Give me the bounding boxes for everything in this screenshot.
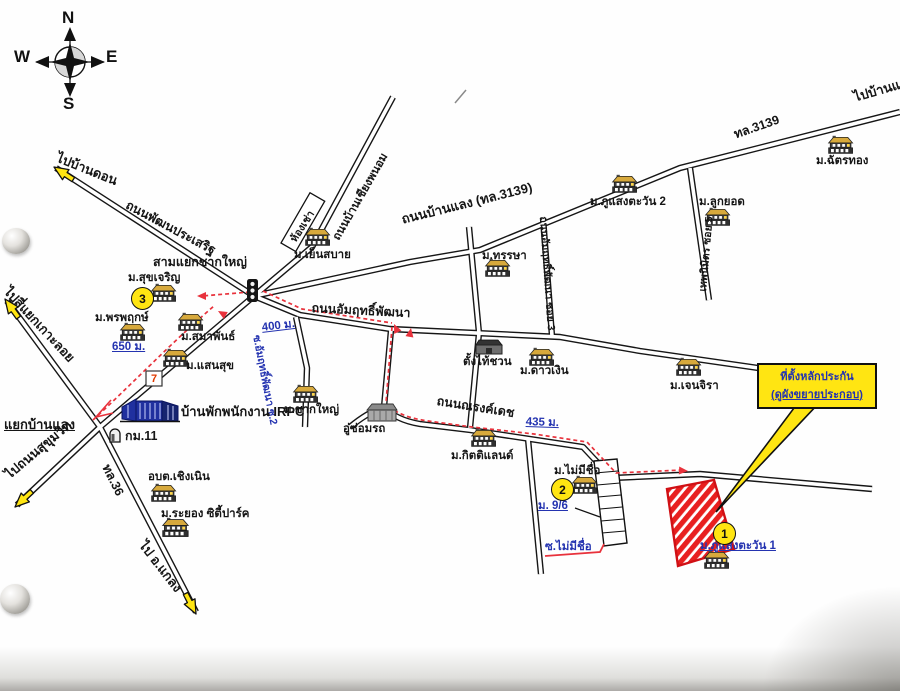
marker-village-3: 3 <box>131 287 154 310</box>
distance-435m: 435 ม. <box>525 415 559 431</box>
label-saen-suk: ม.แสนสุข <box>186 359 234 373</box>
label-tang-thai-chuan: ตั้งไท้ชวน <box>463 355 512 369</box>
label-luk-yot: ม.ลูกยอด <box>699 195 745 209</box>
house-icon <box>164 349 188 367</box>
scanned-location-map: N W E S ไปบ้านดอน ไปสี่แยกเกาะลอย ไปถนนส… <box>0 0 900 691</box>
road-casings <box>7 97 900 612</box>
house-icon <box>306 228 330 246</box>
punch-hole <box>2 228 30 254</box>
seven-eleven-glyph: 7 <box>151 373 157 385</box>
label-irpc-housing: บ้านพักพนักงาน IRPC <box>181 404 304 420</box>
road-soi-no-name: ซ.ไม่มีชื่อ <box>545 540 592 554</box>
house-icon <box>677 358 701 376</box>
junction-ban-laeng: แยกบ้านแลง <box>4 417 75 433</box>
label-phu-saeng-tawan2: ม.ภูแสงตะวัน 2 <box>590 195 666 209</box>
house-icon <box>472 429 496 447</box>
marker-site-1: 1 <box>713 522 736 545</box>
label-thansa: ม.ทรรษา <box>482 249 527 263</box>
label-obt-choeng-noen: อบต.เชิงเนิน <box>148 470 210 484</box>
punch-hole <box>0 584 30 614</box>
traffic-light-icon <box>247 279 258 302</box>
callout-pointer <box>716 404 818 512</box>
house-icon <box>294 385 318 403</box>
tang-thai-chuan-icon <box>476 340 502 354</box>
compass-n: N <box>62 8 74 28</box>
km-milestone-icon <box>110 429 120 442</box>
label-kitti-land: ม.กิตติแลนด์ <box>451 449 513 463</box>
road-mu-9-6: ม. 9/6 <box>538 499 568 513</box>
marker-village-2: 2 <box>551 478 574 501</box>
compass-rose-icon <box>35 27 105 97</box>
label-phu-saeng-tawan1: ม.ภูแสงตะวัน 1 <box>700 539 776 553</box>
scan-tick-mark <box>455 90 466 103</box>
collateral-callout-box: ที่ตั้งหลักประกัน (ดูผังขยายประกอบ) <box>757 363 877 409</box>
callout-line2: (ดูผังขยายประกอบ) <box>761 387 873 405</box>
label-samaphan: ม.สมาพันธ์ <box>181 330 235 344</box>
label-chat-thong: ม.ฉัตรทอง <box>816 154 868 168</box>
label-dao-ngoen: ม.ดาวเงิน <box>520 364 569 378</box>
garage-icon <box>367 404 397 421</box>
marker-3-number: 3 <box>139 292 146 306</box>
house-icon <box>152 284 176 302</box>
house-icon <box>705 551 729 569</box>
label-rayong-city-park: ม.ระยอง ซิตี้ปาร์ค <box>161 507 250 521</box>
compass-e: E <box>106 47 117 67</box>
house-icon <box>613 175 637 193</box>
label-phon-phruek: ม.พรพฤกษ์ <box>95 311 149 325</box>
junction-chak-yai: สามแยกชากใหญ่ <box>153 255 247 271</box>
house-icon <box>573 476 597 494</box>
label-no-name-village: ม.ไม่มีชื่อ <box>554 464 600 478</box>
label-jenjira: ม.เจนจิรา <box>670 379 719 393</box>
marker-2-number: 2 <box>559 483 566 497</box>
distance-650m: 650 ม. <box>112 340 145 354</box>
marker-1-number: 1 <box>721 527 728 541</box>
arrow-klaeng-icon <box>180 591 201 617</box>
house-icon <box>121 323 145 341</box>
compass-w: W <box>14 47 30 67</box>
house-icon <box>179 313 203 331</box>
label-garage: อู่ซ่อมรถ <box>343 422 385 436</box>
label-km11: กม.11 <box>125 429 158 445</box>
road-fills <box>7 97 900 612</box>
house-icon <box>829 136 853 154</box>
callout-line1: ที่ตั้งหลักประกัน <box>761 369 873 387</box>
house-icon <box>152 484 176 502</box>
label-suk-charoen: ม.สุขเจริญ <box>128 271 180 285</box>
compass-s: S <box>63 94 74 114</box>
label-yen-sabai: ม.เย็นสบาย <box>294 248 351 262</box>
house-icon <box>530 348 554 366</box>
mu96-pointer-line <box>575 508 600 517</box>
